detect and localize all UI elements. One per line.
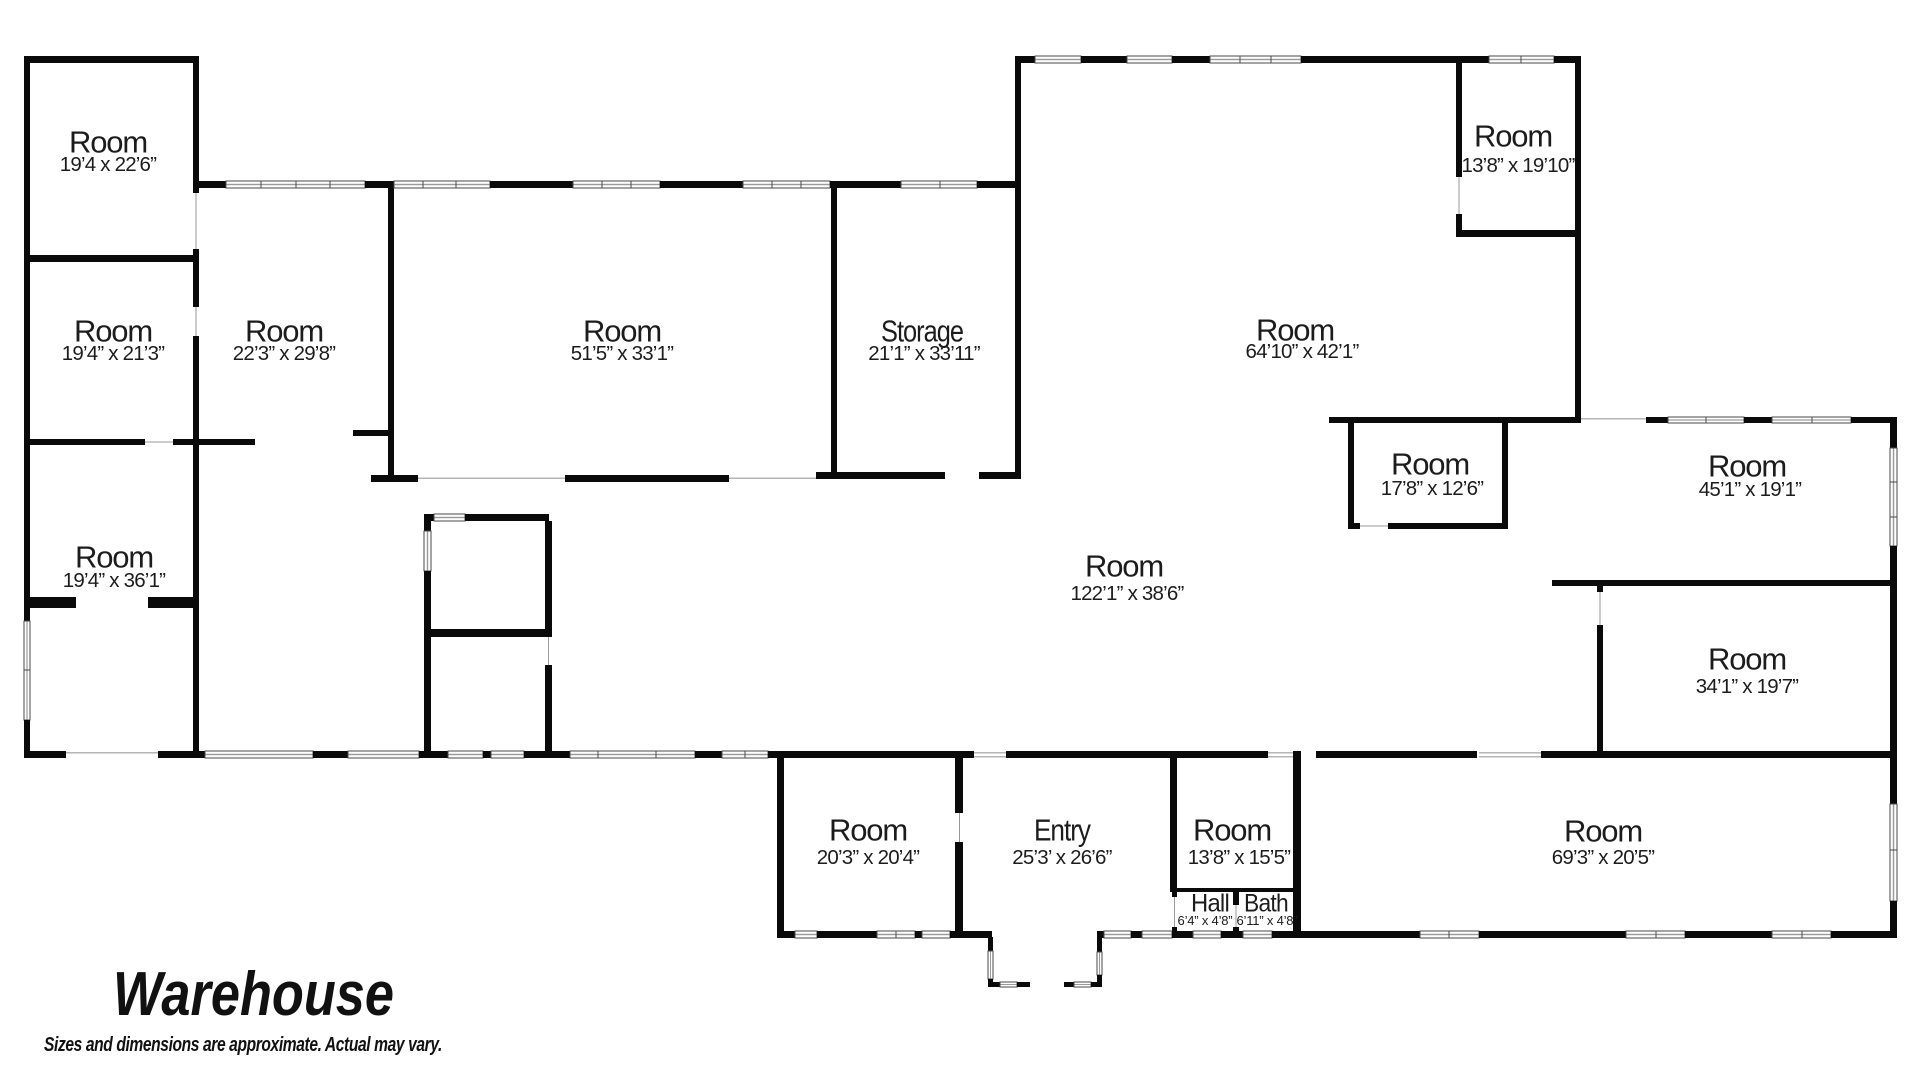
svg-text:Room: Room [1474,119,1552,154]
svg-text:19’4” x 21’3”: 19’4” x 21’3” [62,342,165,365]
svg-text:122’1” x 38’6”: 122’1” x 38’6” [1070,582,1184,605]
svg-text:69’3” x 20’5”: 69’3” x 20’5” [1552,846,1655,869]
svg-text:Room: Room [1085,549,1163,584]
svg-text:19’4” x 36’1”: 19’4” x 36’1” [63,569,166,592]
svg-text:Room: Room [1708,642,1786,677]
svg-text:6’11” x 4’8”: 6’11” x 4’8” [1237,913,1298,928]
svg-text:19’4 x 22’6”: 19’4 x 22’6” [60,153,157,176]
svg-text:25’3’ x 26’6”: 25’3’ x 26’6” [1012,846,1112,869]
svg-text:13’8” x 19’10”: 13’8” x 19’10” [1461,154,1575,177]
svg-text:22’3” x 29’8”: 22’3” x 29’8” [233,342,336,365]
svg-text:Sizes and dimensions are appro: Sizes and dimensions are approximate. Ac… [44,1034,442,1056]
svg-text:Entry: Entry [1034,813,1091,848]
svg-text:64’10” x 42’1”: 64’10” x 42’1” [1245,340,1359,363]
svg-text:Warehouse: Warehouse [113,960,394,1029]
svg-text:6’4” x 4’8”: 6’4” x 4’8” [1178,913,1233,928]
svg-text:34’1” x 19’7”: 34’1” x 19’7” [1696,675,1799,698]
svg-text:Room: Room [829,813,907,848]
svg-text:17’8” x 12’6”: 17’8” x 12’6” [1381,477,1484,500]
svg-text:Room: Room [1564,814,1642,849]
svg-text:Room: Room [1193,813,1271,848]
svg-text:45’1” x 19’1”: 45’1” x 19’1” [1699,478,1802,501]
svg-text:20’3” x 20’4”: 20’3” x 20’4” [817,846,920,869]
svg-text:21’1” x 33’11”: 21’1” x 33’11” [868,342,980,365]
svg-text:51’5” x 33’1”: 51’5” x 33’1” [571,342,674,365]
svg-text:13’8” x 15’5”: 13’8” x 15’5” [1188,846,1291,869]
